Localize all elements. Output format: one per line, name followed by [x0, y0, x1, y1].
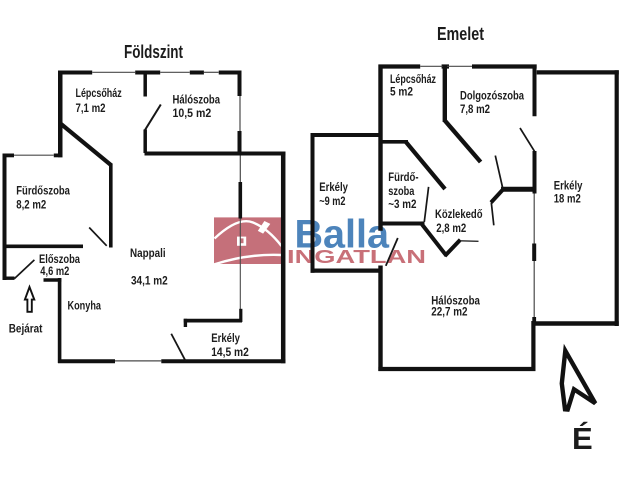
svg-text:Lépcsőház: Lépcsőház	[390, 74, 436, 86]
svg-text:22,7 m2: 22,7 m2	[431, 307, 467, 319]
svg-text:Közlekedő: Közlekedő	[435, 209, 483, 221]
svg-text:2,8 m2: 2,8 m2	[436, 223, 466, 235]
svg-text:5 m2: 5 m2	[390, 87, 413, 99]
svg-text:4,6 m2: 4,6 m2	[40, 266, 69, 278]
svg-text:Lépcsőház: Lépcsőház	[76, 88, 122, 100]
svg-text:18 m2: 18 m2	[554, 194, 581, 206]
svg-text:Fürdőszoba: Fürdőszoba	[16, 186, 70, 198]
svg-text:É: É	[572, 421, 593, 456]
svg-text:~9 m2: ~9 m2	[319, 196, 345, 208]
svg-text:Előszoba: Előszoba	[39, 254, 80, 266]
svg-text:7,1 m2: 7,1 m2	[76, 103, 106, 115]
svg-text:Bejárat: Bejárat	[9, 324, 43, 336]
svg-text:Erkély: Erkély	[554, 181, 583, 193]
svg-text:Erkély: Erkély	[319, 182, 348, 194]
svg-text:Földszint: Földszint	[124, 42, 183, 62]
svg-text:~3 m2: ~3 m2	[388, 199, 416, 211]
svg-text:Emelet: Emelet	[437, 24, 484, 44]
svg-text:14,5 m2: 14,5 m2	[211, 347, 249, 359]
svg-text:Fürdő-: Fürdő-	[388, 172, 418, 184]
svg-text:Konyha: Konyha	[68, 301, 102, 313]
svg-text:INGATLAN: INGATLAN	[287, 247, 426, 267]
svg-text:10,5 m2: 10,5 m2	[173, 108, 212, 120]
svg-text:Dolgozószoba: Dolgozószoba	[460, 91, 524, 103]
svg-text:7,8 m2: 7,8 m2	[460, 104, 490, 116]
svg-text:Hálószoba: Hálószoba	[173, 95, 221, 107]
svg-text:34,1 m2: 34,1 m2	[131, 276, 168, 288]
svg-text:szoba: szoba	[388, 186, 415, 198]
svg-text:Nappali: Nappali	[130, 248, 166, 260]
svg-text:Hálószoba: Hálószoba	[431, 296, 480, 308]
svg-text:8,2 m2: 8,2 m2	[16, 200, 46, 212]
svg-text:Erkély: Erkély	[211, 333, 240, 345]
